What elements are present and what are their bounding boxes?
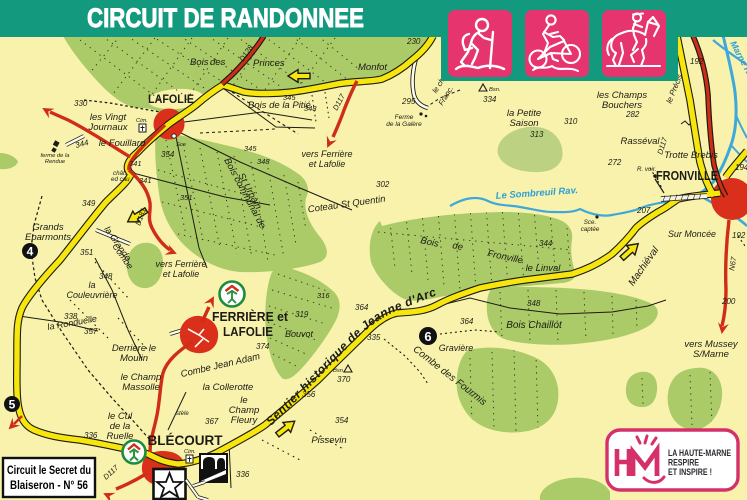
svg-text:la: la: [88, 280, 95, 290]
svg-text:R. voir.: R. voir.: [637, 166, 656, 173]
svg-text:Bois de la Pitié: Bois de la Pitié: [248, 100, 311, 111]
svg-text:BLÉCOURT: BLÉCOURT: [148, 433, 224, 448]
svg-text:348: 348: [527, 299, 541, 308]
svg-text:ET INSPIRE !: ET INSPIRE !: [668, 467, 712, 477]
svg-text:348: 348: [257, 157, 270, 166]
svg-text:316: 316: [317, 291, 330, 300]
svg-text:Moulin: Moulin: [120, 353, 148, 364]
svg-text:Rasséval: Rasséval: [620, 136, 660, 147]
svg-text:S/Marne: S/Marne: [693, 349, 729, 360]
svg-text:Fleury: Fleury: [231, 415, 259, 426]
svg-text:349: 349: [82, 199, 96, 208]
svg-text:Eparmonts: Eparmonts: [25, 232, 71, 243]
svg-text:364: 364: [460, 317, 474, 326]
svg-text:345: 345: [283, 93, 296, 102]
svg-text:FRONVILLE: FRONVILLE: [656, 168, 718, 183]
svg-text:330: 330: [74, 99, 88, 108]
svg-text:LAFOLIE: LAFOLIE: [223, 324, 273, 339]
svg-text:272: 272: [607, 158, 622, 167]
svg-text:351: 351: [180, 193, 193, 202]
svg-text:Sce: Sce: [176, 142, 187, 148]
svg-text:Massolle: Massolle: [122, 382, 160, 393]
svg-text:Bsn.: Bsn.: [333, 368, 345, 374]
svg-text:CIRCUIT DE RANDONNEE: CIRCUIT DE RANDONNEE: [87, 3, 364, 33]
svg-text:Trotte Brebis: Trotte Brebis: [664, 150, 718, 161]
svg-text:et Lafolie: et Lafolie: [163, 269, 200, 279]
svg-text:351: 351: [80, 248, 93, 257]
svg-text:vers Ferrière: vers Ferrière: [155, 259, 206, 269]
svg-text:et Lafolie: et Lafolie: [309, 159, 346, 169]
svg-text:Saison: Saison: [509, 118, 538, 129]
svg-text:357: 357: [84, 327, 98, 336]
svg-text:le Fouillard: le Fouillard: [99, 138, 146, 149]
svg-text:RESPIRE: RESPIRE: [668, 458, 699, 468]
svg-text:de la Galère: de la Galère: [386, 121, 422, 128]
svg-text:336: 336: [236, 470, 250, 479]
svg-text:Cim.: Cim.: [184, 449, 196, 455]
svg-text:341: 341: [139, 176, 152, 185]
svg-text:FERRIÈRE et: FERRIÈRE et: [212, 309, 289, 324]
svg-text:vers Ferrière: vers Ferrière: [301, 149, 352, 159]
svg-text:des: des: [210, 57, 226, 68]
svg-text:367: 367: [205, 417, 219, 426]
svg-text:Journaux: Journaux: [87, 122, 128, 133]
svg-text:348: 348: [304, 104, 317, 113]
svg-text:319: 319: [295, 310, 309, 319]
svg-text:captée: captée: [581, 226, 600, 233]
svg-text:stèle: stèle: [176, 411, 189, 417]
svg-text:Blaiseron - N° 56: Blaiseron - N° 56: [10, 480, 88, 492]
svg-text:Bois Chaillot: Bois Chaillot: [506, 320, 563, 331]
svg-text:Sur Moncée: Sur Moncée: [668, 229, 716, 240]
svg-text:194: 194: [735, 163, 747, 172]
svg-text:Circuit le Secret du: Circuit le Secret du: [7, 465, 91, 477]
svg-text:Bois: Bois: [190, 57, 209, 68]
svg-text:364: 364: [355, 303, 369, 312]
svg-text:Sce.: Sce.: [584, 219, 596, 226]
svg-text:Bsn.: Bsn.: [489, 87, 501, 93]
svg-text:Monfot: Monfot: [358, 62, 387, 73]
svg-text:302: 302: [376, 180, 390, 189]
svg-text:la Collerotte: la Collerotte: [203, 382, 254, 393]
svg-text:344: 344: [539, 239, 553, 248]
svg-text:Couleuvrière: Couleuvrière: [66, 290, 117, 300]
svg-text:Princes: Princes: [253, 58, 285, 69]
svg-text:374: 374: [256, 342, 270, 351]
svg-text:354: 354: [161, 150, 175, 159]
svg-text:207: 207: [636, 206, 651, 215]
svg-text:282: 282: [625, 110, 640, 119]
svg-text:370: 370: [337, 375, 351, 384]
svg-text:192: 192: [690, 57, 704, 66]
svg-text:310: 310: [564, 117, 578, 126]
svg-text:le Linval: le Linval: [526, 263, 562, 274]
svg-text:345: 345: [244, 144, 257, 153]
svg-text:334: 334: [483, 95, 497, 104]
svg-text:354: 354: [335, 416, 349, 425]
svg-text:336: 336: [84, 431, 98, 440]
svg-text:Ferme: Ferme: [395, 114, 414, 121]
svg-text:Pissevin: Pissevin: [311, 435, 346, 446]
svg-text:313: 313: [530, 130, 544, 139]
svg-text:LAFOLIE: LAFOLIE: [148, 94, 194, 106]
svg-text:6: 6: [424, 329, 431, 344]
svg-text:348: 348: [99, 272, 113, 281]
svg-text:LA HAUTE-MARNE: LA HAUTE-MARNE: [668, 448, 731, 458]
svg-text:5: 5: [9, 398, 16, 412]
svg-text:335: 335: [367, 333, 381, 342]
svg-text:230: 230: [406, 37, 421, 46]
svg-text:Cim.: Cim.: [136, 118, 148, 124]
svg-text:200: 200: [721, 297, 736, 306]
svg-text:4: 4: [27, 245, 34, 259]
svg-text:295: 295: [401, 97, 416, 106]
svg-text:ed cau: ed cau: [111, 176, 130, 183]
svg-text:Gravière: Gravière: [439, 343, 474, 353]
svg-text:Rendue: Rendue: [45, 159, 66, 165]
svg-text:Bouvot: Bouvot: [285, 329, 314, 339]
svg-text:Ruelle: Ruelle: [107, 431, 134, 442]
svg-text:de: de: [451, 240, 464, 253]
svg-text:341: 341: [129, 159, 142, 168]
svg-text:192: 192: [732, 231, 746, 240]
